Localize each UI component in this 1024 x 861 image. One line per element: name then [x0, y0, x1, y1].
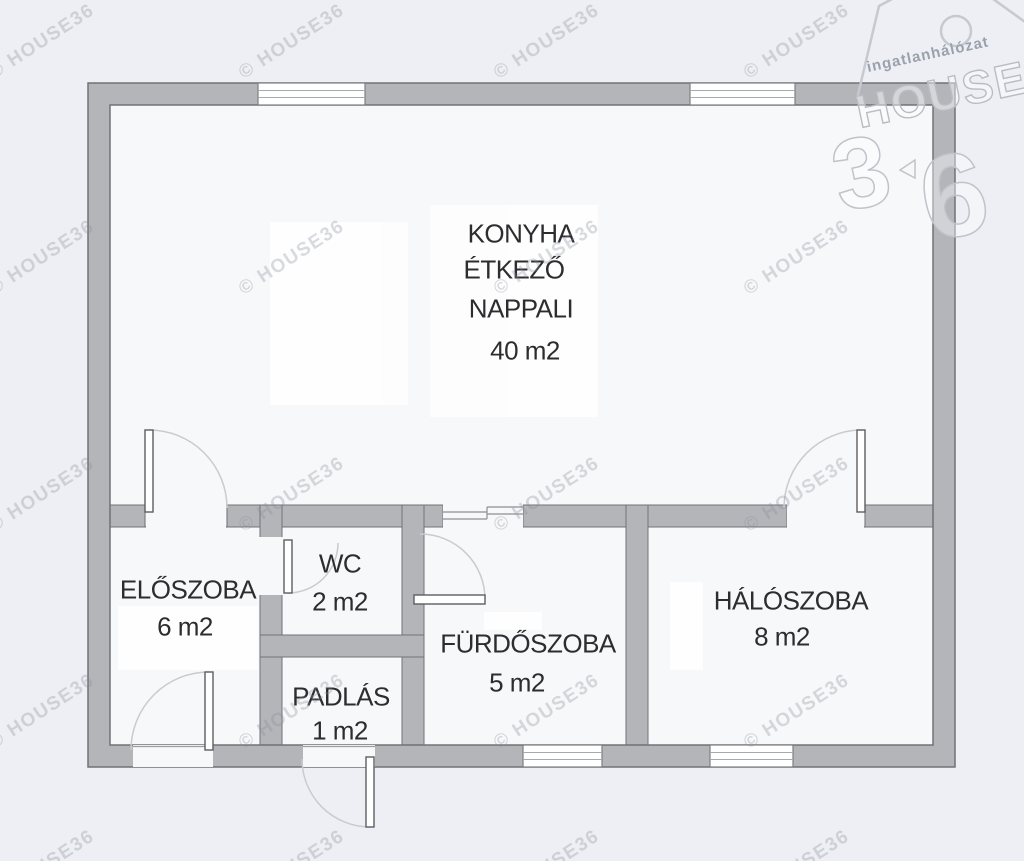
furniture-konyha-left — [270, 222, 408, 405]
room-label-konyha-line3: NAPPALI — [469, 294, 573, 325]
room-area-padlas: 1 m2 — [312, 716, 368, 747]
door-leaf-eloszoba-konyha — [145, 430, 153, 512]
door-leaf-furdoszoba — [414, 595, 485, 604]
wall-wc-padlas — [260, 635, 424, 657]
room-label-wc: WC — [319, 549, 361, 580]
window-bottom-furdoszoba — [523, 745, 602, 767]
room-area-konyha: 40 m2 — [490, 336, 560, 367]
door-arc-padlas — [302, 759, 370, 827]
furniture-furdoszoba — [484, 612, 542, 630]
wall-wc-furdoszoba — [402, 505, 424, 745]
wall-mid-left — [110, 505, 145, 527]
door-leaf-haloszoba — [857, 430, 865, 512]
furniture-haloszoba — [670, 582, 703, 670]
wall-mid-right — [523, 505, 787, 527]
room-label-haloszoba: HÁLÓSZOBA — [714, 586, 868, 617]
door-leaf-padlas — [366, 757, 374, 827]
floorplan-image: KONYHA ÉTKEZŐ NAPPALI 40 m2 ELŐSZOBA 6 m… — [0, 0, 1024, 861]
door-gap-eloszoba-konyha — [146, 504, 226, 528]
door-gap-entrance — [133, 745, 213, 767]
door-gap-wc — [259, 537, 283, 595]
furdoszoba-door-opening — [443, 504, 523, 528]
door-gap-padlas — [303, 745, 375, 767]
door-leaf-entrance — [205, 672, 213, 750]
window-top-right — [690, 83, 795, 105]
window-top-left — [258, 83, 365, 105]
room-label-eloszoba: ELŐSZOBA — [120, 575, 256, 606]
floor-wc — [282, 527, 402, 635]
door-gap-haloszoba — [787, 504, 864, 528]
wall-furdoszoba-haloszoba — [626, 505, 648, 745]
room-label-konyha-line1: KONYHA — [468, 219, 575, 250]
door-leaf-wc — [284, 540, 292, 593]
room-area-wc: 2 m2 — [312, 587, 368, 618]
room-label-furdoszoba: FÜRDŐSZOBA — [440, 629, 616, 660]
room-label-konyha-line2: ÉTKEZŐ — [463, 255, 564, 286]
room-label-padlas: PADLÁS — [292, 682, 390, 713]
room-area-furdoszoba: 5 m2 — [489, 668, 545, 699]
floorplan-drawing — [0, 0, 1024, 861]
room-area-haloszoba: 8 m2 — [754, 622, 810, 653]
window-bottom-haloszoba — [710, 745, 793, 767]
wall-mid-far-right — [865, 505, 933, 527]
room-area-eloszoba: 6 m2 — [157, 612, 213, 643]
